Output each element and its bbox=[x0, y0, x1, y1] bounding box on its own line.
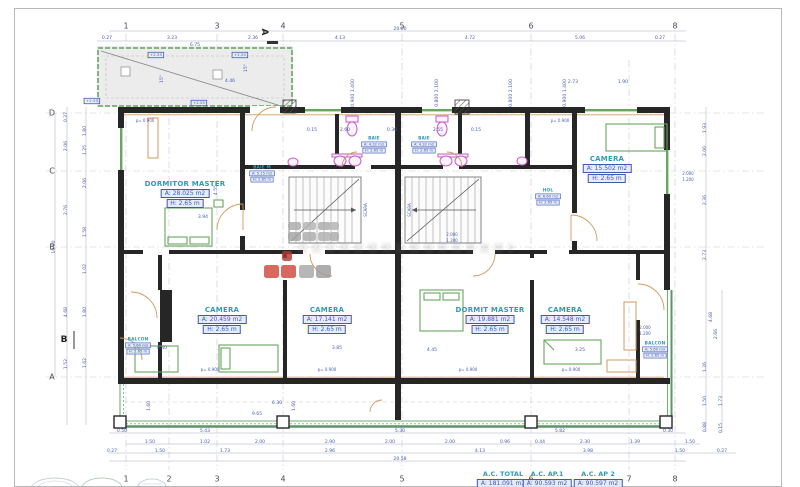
annotation-text: p= 0.900 bbox=[562, 367, 581, 372]
area-total-block: A.C. TOTALA: 181.091 m2 bbox=[477, 471, 529, 487]
dimension-text: 2.66 bbox=[713, 329, 719, 339]
watermark-square bbox=[318, 232, 331, 241]
grid-number-bottom: 5 bbox=[399, 475, 404, 484]
room-height-box: H: 2.65 m bbox=[362, 148, 385, 154]
dimension-text: 2.96 bbox=[325, 448, 335, 454]
grid-number-bottom: 2 bbox=[166, 475, 171, 484]
dimension-text: 2.73 bbox=[568, 79, 578, 85]
room-height-box: H: 2.65 m bbox=[412, 148, 435, 154]
room-height-box: H: 2.65 m bbox=[166, 199, 204, 208]
dimension-text: 4.13 bbox=[335, 35, 345, 41]
dimension-text: 3.94 bbox=[198, 214, 208, 220]
watermark-square bbox=[281, 265, 296, 278]
section-marker: B bbox=[61, 335, 68, 345]
room-name: CAMERA bbox=[303, 306, 352, 314]
dimension-text: 1.02 bbox=[200, 439, 210, 445]
dimension-text: 4.13 bbox=[475, 448, 485, 454]
watermark-square bbox=[330, 222, 339, 230]
dimension-text: 1.80 bbox=[82, 126, 88, 136]
dimension-text: 5.30 bbox=[395, 428, 405, 434]
bathroom-fixtures bbox=[288, 116, 527, 166]
dimension-text: 0.44 bbox=[535, 439, 545, 445]
dimension-text: 2.06 bbox=[82, 178, 88, 188]
dimension-text: 1.62 bbox=[82, 358, 88, 368]
watermark-square bbox=[303, 222, 316, 230]
room-name: BALCON bbox=[125, 337, 150, 342]
room-name: DORMIT MASTER bbox=[456, 306, 525, 314]
annotation-text: 2.000 bbox=[682, 171, 694, 176]
dimension-text: 4.68 bbox=[63, 307, 69, 317]
room-label-dormitor-master: DORMITOR MASTERA: 28.025 m2H: 2.65 m bbox=[145, 180, 226, 208]
bed-icon bbox=[606, 124, 667, 151]
grid-number-top: 8 bbox=[672, 22, 677, 31]
dimension-text: 2.36 bbox=[248, 35, 258, 41]
total-title: A.C. AP.1 bbox=[523, 471, 572, 478]
room-area-box: A: 19.881 m2 bbox=[466, 315, 515, 324]
dimension-text: 15° bbox=[243, 64, 249, 72]
annotation-text: 2.000 bbox=[639, 325, 651, 330]
dimension-text: 1.50 bbox=[155, 448, 165, 454]
dimension-text: 2.06 bbox=[63, 141, 69, 151]
dimension-text: 0.27 bbox=[102, 35, 112, 41]
dimension-text: 6.30 bbox=[272, 400, 282, 406]
room-label-baie-m: BAIE MA: 5.15 m2H: 2.65 m bbox=[249, 165, 274, 182]
room-height-box: H: 2.65 m bbox=[643, 353, 666, 359]
watermark-square bbox=[318, 222, 331, 230]
dimension-text: 5.82 bbox=[555, 428, 565, 434]
room-height-box: H: 2.65 m bbox=[308, 325, 346, 334]
dimension-text: 2.76 bbox=[63, 205, 69, 215]
dimension-text: 1.58 bbox=[82, 227, 88, 237]
section-marker: A bbox=[259, 29, 269, 36]
dimension-text: 2.36 bbox=[702, 195, 708, 205]
room-area-box: A: 4.32 m2 bbox=[361, 142, 386, 148]
room-area-box: A: 5.60 m2 bbox=[642, 347, 667, 353]
dimension-text: 5.06 bbox=[575, 35, 585, 41]
dimension-text: 1.73 bbox=[718, 396, 724, 406]
dimension-text: 0.800 2.100 bbox=[508, 79, 514, 107]
annotation-text: p= 0.900 bbox=[136, 118, 155, 123]
dimension-text: 1.90 bbox=[618, 79, 628, 85]
dimension-text: 0.30 bbox=[387, 127, 397, 133]
dimension-text: 9.65 bbox=[252, 411, 262, 417]
room-label-camera: CAMERAA: 15.502 m2H: 2.65 m bbox=[583, 155, 632, 183]
dimension-text: 5.43 bbox=[200, 428, 210, 434]
room-name: CAMERA bbox=[198, 306, 247, 314]
level-badge: +2.55 bbox=[84, 98, 101, 104]
stamp-icon bbox=[31, 478, 166, 487]
room-label-balcon: BALCONA: 5.60 m2H: 2.65 m bbox=[125, 337, 150, 354]
dimension-text: 1.39 bbox=[630, 439, 640, 445]
grid-number-top: 5 bbox=[399, 22, 404, 31]
watermark-text-smudge bbox=[298, 243, 513, 253]
room-name: DORMITOR MASTER bbox=[145, 180, 226, 188]
area-total-block: A.C. AP.1A: 90.593 m2 bbox=[523, 471, 572, 487]
dimension-text: 0.15 bbox=[471, 127, 481, 133]
dimension-text: 0.27 bbox=[655, 35, 665, 41]
bed-icon bbox=[219, 345, 278, 372]
dimension-text: 4.72 bbox=[465, 35, 475, 41]
room-height-box: H: 2.65 m bbox=[250, 177, 273, 183]
annotation-text: p= 0.900 bbox=[459, 367, 478, 372]
dimension-text: 1.60 bbox=[146, 401, 152, 411]
grid-letter: B bbox=[49, 243, 55, 252]
room-area-box: A: 4.32 m2 bbox=[411, 142, 436, 148]
total-value-box: A: 90.593 m2 bbox=[523, 479, 572, 487]
annotation-text: 1.200 bbox=[639, 331, 651, 336]
room-label-hol: HOLA: 6.60 m2H: 2.65 m bbox=[535, 188, 560, 205]
dimension-text: 1.73 bbox=[220, 448, 230, 454]
dimension-text: 1.25 bbox=[82, 145, 88, 155]
room-height-box: H: 2.65 m bbox=[471, 325, 509, 334]
dimension-text: 1.93 bbox=[702, 123, 708, 133]
dimension-text: 3.25 bbox=[575, 347, 585, 353]
total-title: A.C. AP 2 bbox=[574, 471, 623, 478]
dimension-text: 1.50 bbox=[685, 439, 695, 445]
room-label-baie: BAIEA: 4.32 m2H: 2.65 m bbox=[361, 136, 386, 153]
room-height-box: H: 2.65 m bbox=[588, 174, 626, 183]
dimension-text: 1.50 bbox=[702, 396, 708, 406]
dimension-text: 3.85 bbox=[332, 345, 342, 351]
dimension-text: 0.96 bbox=[500, 439, 510, 445]
dimension-text: 15° bbox=[159, 75, 165, 83]
dimension-text: 2.90 bbox=[325, 439, 335, 445]
dimension-text: 2.30 bbox=[580, 439, 590, 445]
dimension-text: 3.23 bbox=[167, 35, 177, 41]
dimension-text: 0.30 bbox=[663, 428, 673, 434]
room-height-box: H: 2.65 m bbox=[126, 349, 149, 355]
watermark-square bbox=[316, 265, 331, 278]
annotation-text: 1.200 bbox=[682, 177, 694, 182]
dimension-text: 20.58 bbox=[393, 456, 406, 462]
watermark-square bbox=[303, 232, 316, 241]
dimension-text: 4.45 bbox=[427, 347, 437, 353]
room-label-camera: CAMERAA: 17.141 m2H: 2.65 m bbox=[303, 306, 352, 334]
dimension-text: 2.73 bbox=[702, 250, 708, 260]
room-label-balcon: BALCONA: 5.60 m2H: 2.65 m bbox=[642, 341, 667, 358]
room-area-box: A: 17.141 m2 bbox=[303, 315, 352, 324]
dimension-text: 1.26 bbox=[702, 362, 708, 372]
room-label-baie: BAIEA: 4.32 m2H: 2.65 m bbox=[411, 136, 436, 153]
annotation-text: p= 0.900 bbox=[201, 367, 220, 372]
dimension-text: 0.900 1.400 bbox=[350, 79, 356, 107]
room-name: CAMERA bbox=[583, 155, 632, 163]
dimension-text: 3.98 bbox=[583, 448, 593, 454]
grid-letter: A bbox=[49, 373, 54, 382]
dimension-text: 0.88 bbox=[702, 422, 708, 432]
room-name: BAIE bbox=[361, 136, 386, 141]
room-area-box: A: 5.60 m2 bbox=[125, 343, 150, 349]
room-area-box: A: 5.15 m2 bbox=[249, 171, 274, 177]
dimension-text: 2.55 bbox=[433, 127, 443, 133]
dimension-text: 4.46 bbox=[225, 78, 235, 84]
grid-number-top: 6 bbox=[528, 22, 533, 31]
grid-letter: D bbox=[49, 109, 55, 118]
dimension-text: 0.15 bbox=[718, 423, 724, 433]
grid-number-bottom: 8 bbox=[672, 475, 677, 484]
grid-letter: C bbox=[49, 167, 55, 176]
area-total-block: A.C. AP 2A: 90.597 m2 bbox=[574, 471, 623, 487]
bed-icon bbox=[544, 340, 601, 364]
level-badge: +2.55 bbox=[191, 100, 208, 106]
dimension-text: 0.50 bbox=[117, 428, 127, 434]
dimension-text: 1.02 bbox=[82, 264, 88, 274]
watermark-square bbox=[299, 265, 314, 278]
dimension-text: 0.27 bbox=[717, 448, 727, 454]
watermark-square bbox=[288, 232, 301, 241]
watermark-square bbox=[330, 232, 339, 241]
room-height-box: H: 2.65 m bbox=[546, 325, 584, 334]
room-area-box: A: 15.502 m2 bbox=[583, 164, 632, 173]
grid-number-top: 4 bbox=[280, 22, 285, 31]
grid-number-bottom: 7 bbox=[626, 475, 631, 484]
grid-number-top: 3 bbox=[214, 22, 219, 31]
total-value-box: A: 90.597 m2 bbox=[574, 479, 623, 487]
room-name: CAMERA bbox=[541, 306, 590, 314]
dimension-text: 1.60 bbox=[291, 401, 297, 411]
room-area-box: A: 14.548 m2 bbox=[541, 315, 590, 324]
total-value-box: A: 181.091 m2 bbox=[477, 479, 529, 487]
room-name: BAIE M bbox=[249, 165, 274, 170]
grid-number-top: 1 bbox=[123, 22, 128, 31]
grid-number-bottom: 4 bbox=[280, 475, 285, 484]
dimension-text: 2.00 bbox=[255, 439, 265, 445]
room-name: BAIE bbox=[411, 136, 436, 141]
room-area-box: A: 6.60 m2 bbox=[535, 194, 560, 200]
room-label-dormit-master: DORMIT MASTERA: 19.881 m2H: 2.65 m bbox=[456, 306, 525, 334]
dimension-text: 2.06 bbox=[702, 146, 708, 156]
dimension-text: 0.800 2.100 bbox=[434, 79, 440, 107]
room-name: BALCON bbox=[642, 341, 667, 346]
dimension-text: 1.52 bbox=[63, 359, 69, 369]
dimension-text: 2.60 bbox=[340, 127, 350, 133]
dimension-text: 0.27 bbox=[107, 448, 117, 454]
annotation-text: SCARA bbox=[363, 203, 368, 217]
annotation-text: p= 0.900 bbox=[551, 118, 570, 123]
terrace bbox=[97, 47, 293, 107]
walls bbox=[118, 107, 670, 420]
dimension-text: 0.900 1.400 bbox=[562, 79, 568, 107]
dimension-text: 4.68 bbox=[708, 312, 714, 322]
annotation-text: SCARA bbox=[407, 203, 412, 217]
room-area-box: A: 28.025 m2 bbox=[161, 189, 210, 198]
room-label-camera: CAMERAA: 14.548 m2H: 2.65 m bbox=[541, 306, 590, 334]
room-height-box: H: 2.65 m bbox=[536, 200, 559, 206]
watermark-square bbox=[288, 222, 301, 230]
room-area-box: A: 20.459 m2 bbox=[198, 315, 247, 324]
dimension-text: 1.50 bbox=[675, 448, 685, 454]
dimension-text: 2.00 bbox=[445, 439, 455, 445]
level-badge: +2.55 bbox=[232, 52, 249, 58]
total-title: A.C. TOTAL bbox=[477, 471, 529, 478]
dimension-text: 1.50 bbox=[145, 439, 155, 445]
grid-number-bottom: 1 bbox=[123, 475, 128, 484]
annotation-text: p= 0.900 bbox=[318, 367, 337, 372]
bed-icon bbox=[165, 208, 212, 246]
watermark-square bbox=[264, 265, 279, 278]
dimension-text: 0.27 bbox=[63, 112, 69, 122]
room-height-box: H: 2.65 m bbox=[203, 325, 241, 334]
dimension-text: 2.00 bbox=[385, 439, 395, 445]
dimension-text: 1.80 bbox=[82, 307, 88, 317]
room-label-camera: CAMERAA: 20.459 m2H: 2.65 m bbox=[198, 306, 247, 334]
drawing-sheet: 0.273.232.364.134.725.060.276.7520.004.4… bbox=[0, 0, 800, 487]
dimension-text: 6.75 bbox=[190, 42, 200, 48]
grid-number-bottom: 3 bbox=[214, 475, 219, 484]
dimension-text: 8.40 bbox=[157, 345, 167, 351]
dimension-text: 0.15 bbox=[307, 127, 317, 133]
annotation-text: 2.000 bbox=[446, 232, 458, 237]
level-badge: +2.55 bbox=[148, 52, 165, 58]
watermark-square bbox=[282, 251, 292, 261]
room-name: HOL bbox=[535, 188, 560, 193]
